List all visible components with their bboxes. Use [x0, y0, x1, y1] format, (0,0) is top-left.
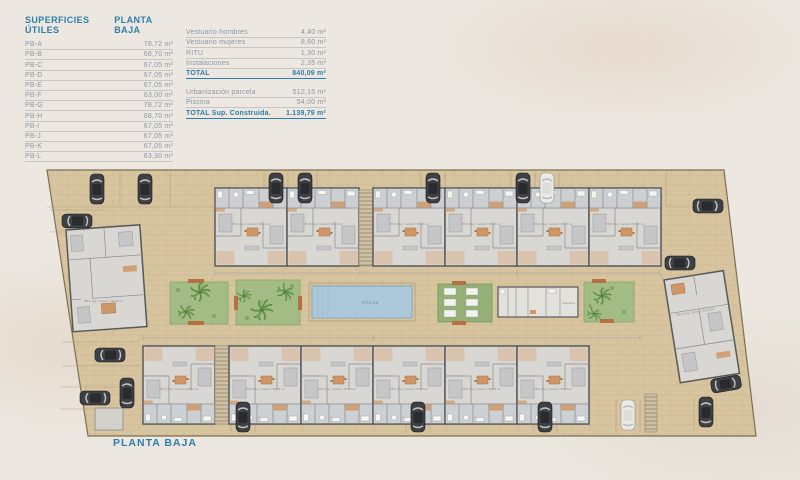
car-icon	[269, 173, 283, 203]
housing-unit	[373, 346, 445, 424]
car-icon	[621, 400, 635, 430]
unit-label: PB-K Sup. Constr.= 95,33 m²	[462, 387, 501, 391]
plan-title: PLANTA BAJA	[113, 437, 197, 449]
unit-label: PB-F Sup. Constr.= 95,33 m²	[606, 222, 645, 226]
pergola	[438, 281, 492, 325]
swimming-pool: Piscina	[309, 283, 415, 321]
unit-label: PB-L Sup. Constr.= 95,33 m²	[534, 387, 572, 391]
unit-label: PB-D Sup. Constr.= 95,33 m²	[462, 222, 501, 226]
car-icon	[426, 173, 440, 203]
car-icon	[236, 402, 250, 432]
housing-unit	[445, 346, 517, 424]
unit-label: PB-B Sup. Constr.= 95,33 m²	[304, 222, 343, 226]
unit-label: PB-A Sup. Constr.= 98,03 m²	[84, 299, 123, 303]
car-icon	[298, 173, 312, 203]
stair-passage	[215, 346, 229, 424]
unit-label: PB-A Sup. Constr.= 98,14 m²	[232, 222, 271, 226]
unit-label: PB-C Sup. Constr.= 95,33 m²	[390, 222, 429, 226]
car-icon	[138, 174, 152, 204]
car-icon	[411, 402, 425, 432]
car-icon	[62, 214, 92, 228]
housing-unit	[287, 188, 359, 266]
car-icon	[516, 173, 530, 203]
unit-label: PB-I Sup. Constr.= 95,33 m²	[318, 387, 356, 391]
unit-label: PB-H Sup. Constr.= 95,33 m²	[246, 387, 285, 391]
unit-label: PB-J Sup. Constr.= 95,33 m²	[390, 387, 428, 391]
car-icon	[699, 397, 713, 427]
unit-label: PB-E Sup. Constr.= 95,33 m²	[534, 222, 573, 226]
utility-box	[95, 408, 123, 430]
housing-unit	[445, 188, 517, 266]
site-plan: Piscina Vestuarios	[0, 0, 800, 480]
housing-unit	[589, 188, 661, 266]
stair-passage	[645, 394, 657, 432]
car-icon	[538, 402, 552, 432]
housing-unit	[143, 346, 215, 424]
bottom-building-row	[143, 346, 589, 424]
vestuarios-building: Vestuarios	[498, 287, 578, 317]
unit-label: PB-G Sup. Constr.= 98,14 m²	[159, 387, 198, 391]
stair-passage	[359, 190, 373, 266]
vestuarios-label: Vestuarios	[562, 301, 576, 305]
pool-label: Piscina	[362, 300, 379, 305]
car-icon	[80, 391, 110, 405]
left-end-building	[66, 225, 147, 332]
car-icon	[540, 173, 554, 203]
housing-unit	[517, 346, 589, 424]
car-icon	[693, 199, 723, 213]
car-icon	[665, 256, 695, 270]
car-icon	[95, 348, 125, 362]
car-icon	[90, 174, 104, 204]
housing-unit	[301, 346, 373, 424]
car-icon	[120, 378, 134, 408]
